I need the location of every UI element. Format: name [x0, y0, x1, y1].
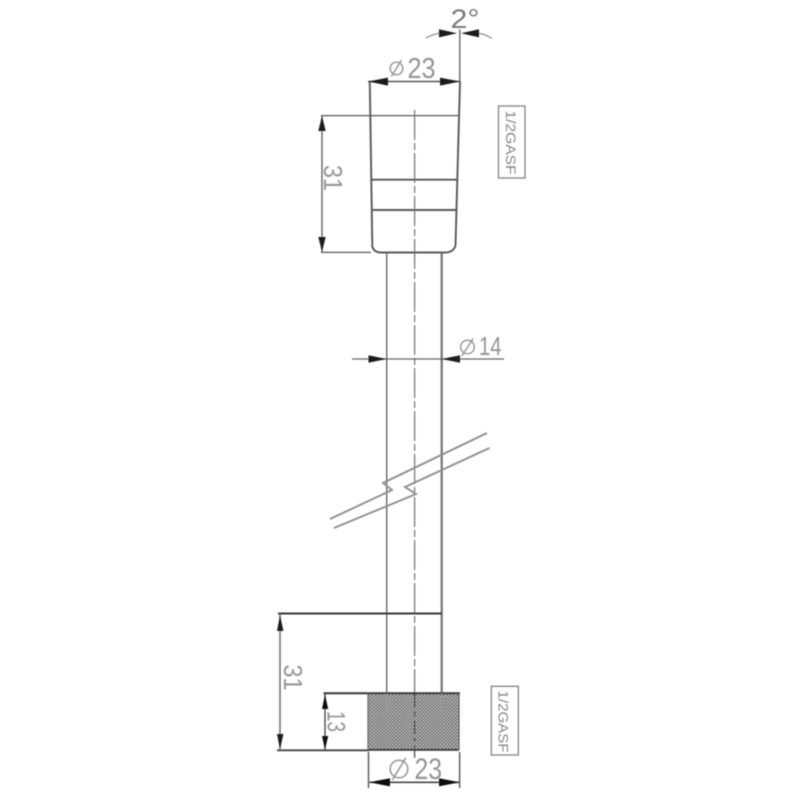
- svg-text:31: 31: [278, 665, 308, 691]
- svg-text:14: 14: [479, 331, 502, 361]
- svg-text:1/2GASF: 1/2GASF: [496, 691, 512, 753]
- svg-text:2°: 2°: [451, 4, 480, 34]
- svg-text:23: 23: [415, 753, 443, 786]
- svg-text:31: 31: [318, 165, 348, 191]
- svg-text:23: 23: [408, 53, 436, 85]
- svg-text:1/2GASF: 1/2GASF: [503, 111, 519, 175]
- svg-text:13: 13: [322, 711, 350, 732]
